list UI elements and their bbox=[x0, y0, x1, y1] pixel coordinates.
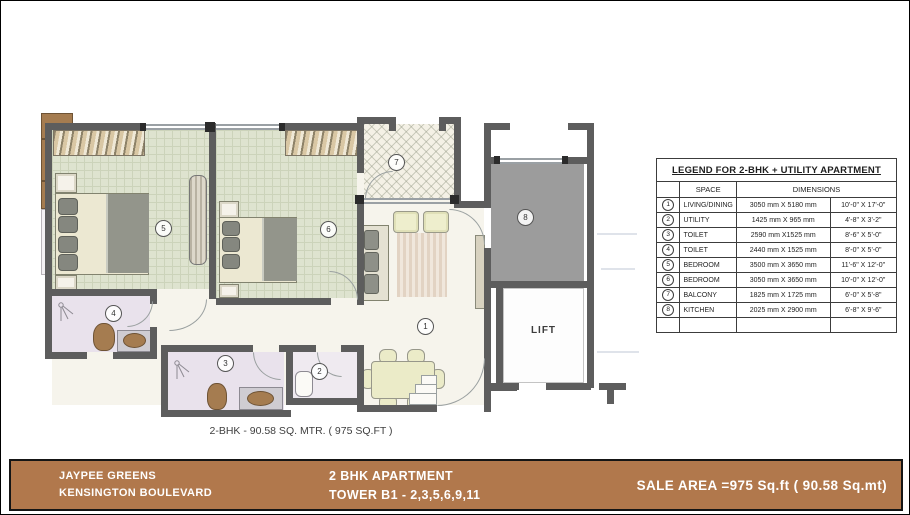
wall bbox=[45, 123, 52, 359]
entry-step bbox=[409, 393, 437, 405]
legend-header-space: SPACE bbox=[680, 182, 736, 198]
legend-dim-mm: 2440 mm X 1525 mm bbox=[736, 243, 830, 258]
room-number-label: 4 bbox=[111, 309, 115, 318]
room-number-8: 8 bbox=[517, 209, 534, 226]
room-number-4: 4 bbox=[105, 305, 122, 322]
nightstand bbox=[219, 201, 239, 218]
wall bbox=[454, 117, 461, 201]
project-line1: JAYPEE GREENS bbox=[59, 468, 212, 485]
nightstand bbox=[55, 275, 77, 290]
legend-header-blank bbox=[657, 182, 680, 198]
room-number-label: 7 bbox=[394, 158, 398, 167]
pillow bbox=[222, 237, 240, 252]
unit-line1: 2 BHK APARTMENT bbox=[329, 467, 480, 486]
window-post bbox=[279, 123, 285, 131]
window bbox=[498, 162, 564, 164]
wall bbox=[161, 345, 253, 352]
legend-row: 5 BEDROOM 3500 mm X 3650 mm 11'-6" X 12'… bbox=[657, 258, 897, 273]
room-number-3: 3 bbox=[217, 355, 234, 372]
armchair bbox=[423, 211, 449, 233]
room-number-label: 5 bbox=[161, 224, 165, 233]
legend-space: LIVING/DINING bbox=[680, 198, 736, 213]
wall bbox=[45, 123, 145, 130]
bed-blanket bbox=[262, 218, 297, 281]
lift-label: LIFT bbox=[503, 325, 584, 336]
legend-dim-mm: 3500 mm X 3650 mm bbox=[736, 258, 830, 273]
armchair bbox=[393, 211, 419, 233]
legend-dim-ft: 4'-8" X 3'-2" bbox=[830, 213, 896, 228]
window-post bbox=[450, 195, 459, 204]
sofa-cushion bbox=[364, 230, 379, 250]
window-post bbox=[140, 123, 146, 131]
unit-info-block: 2 BHK APARTMENT TOWER B1 - 2,3,5,6,9,11 bbox=[329, 467, 480, 505]
bed bbox=[55, 193, 149, 275]
toilet-fixture bbox=[93, 323, 115, 351]
legend-dim-mm: 2025 mm X 2900 mm bbox=[736, 303, 830, 318]
legend-table: LEGEND FOR 2-BHK + UTILITY APARTMENT SPA… bbox=[656, 158, 897, 333]
wall bbox=[281, 123, 363, 130]
legend-dim-mm: 1425 mm X 965 mm bbox=[736, 213, 830, 228]
legend-space: BALCONY bbox=[680, 288, 736, 303]
legend-row: 4 TOILET 2440 mm X 1525 mm 8'-0" X 5'-0" bbox=[657, 243, 897, 258]
ghost-line bbox=[597, 233, 637, 235]
shower-icon bbox=[57, 301, 77, 323]
legend-dim-ft: 8'-0" X 5'-0" bbox=[830, 243, 896, 258]
washbasin bbox=[247, 391, 274, 406]
legend-space: BEDROOM bbox=[680, 273, 736, 288]
legend-dim-ft: 11'-6" X 12'-0" bbox=[830, 258, 896, 273]
pillow bbox=[222, 254, 240, 269]
wall bbox=[546, 383, 591, 390]
legend-row-number: 8 bbox=[662, 304, 674, 316]
wall bbox=[286, 345, 293, 405]
legend-row-number: 2 bbox=[662, 214, 674, 226]
legend-dim-mm: 1825 mm X 1725 mm bbox=[736, 288, 830, 303]
legend-dim-ft: 6'-0" X 5'-8" bbox=[830, 288, 896, 303]
rug bbox=[397, 233, 447, 297]
ghost-line bbox=[597, 351, 639, 353]
window-post bbox=[205, 122, 215, 132]
window-post bbox=[494, 156, 500, 164]
legend-dim-ft: 6'-8" X 9'-6" bbox=[830, 303, 896, 318]
legend-row-empty bbox=[657, 318, 897, 333]
legend-dim-ft: 8'-6" X 5'-0" bbox=[830, 228, 896, 243]
legend-row-number: 5 bbox=[662, 259, 674, 271]
wall bbox=[286, 398, 363, 405]
pillow bbox=[58, 254, 78, 271]
legend-row: 7 BALCONY 1825 mm X 1725 mm 6'-0" X 5'-8… bbox=[657, 288, 897, 303]
wall bbox=[496, 288, 503, 388]
wall bbox=[357, 117, 393, 124]
legend-row: 2 UTILITY 1425 mm X 965 mm 4'-8" X 3'-2" bbox=[657, 213, 897, 228]
bed bbox=[219, 217, 297, 283]
room-number-7: 7 bbox=[388, 154, 405, 171]
legend-row-number: 7 bbox=[662, 289, 674, 301]
title-bar: JAYPEE GREENS KENSINGTON BOULEVARD 2 BHK… bbox=[9, 459, 903, 511]
room-number-label: 1 bbox=[423, 322, 427, 331]
project-line2: KENSINGTON BOULEVARD bbox=[59, 485, 212, 502]
legend-dim-mm: 3050 mm X 5180 mm bbox=[736, 198, 830, 213]
window-curtain bbox=[53, 130, 145, 156]
room-number-label: 8 bbox=[523, 213, 527, 222]
wall bbox=[484, 281, 594, 288]
legend-space: TOILET bbox=[680, 243, 736, 258]
wall bbox=[389, 117, 396, 131]
legend-row-number: 1 bbox=[662, 199, 674, 211]
legend-header-dimensions: DIMENSIONS bbox=[736, 182, 896, 198]
room-number-label: 6 bbox=[326, 225, 330, 234]
pillow bbox=[58, 198, 78, 215]
legend-row: 8 KITCHEN 2025 mm X 2900 mm 6'-8" X 9'-6… bbox=[657, 303, 897, 318]
kitchen-floor bbox=[491, 164, 584, 281]
room-number-1: 1 bbox=[417, 318, 434, 335]
legend-dim-ft: 10'-0" X 17'-0" bbox=[830, 198, 896, 213]
wall bbox=[599, 383, 626, 390]
wall bbox=[357, 195, 364, 305]
sliding-window bbox=[361, 202, 453, 204]
ghost-line bbox=[601, 268, 635, 270]
floor-plan-sheet: 1 2 3 4 5 6 7 8 LIFT 2-BHK - 90.58 SQ. M… bbox=[0, 0, 910, 515]
wall bbox=[357, 123, 364, 173]
sofa-cushion bbox=[364, 252, 379, 272]
wall bbox=[279, 345, 316, 352]
legend-row: 3 TOILET 2590 mm X1525 mm 8'-6" X 5'-0" bbox=[657, 228, 897, 243]
pillow bbox=[58, 236, 78, 253]
sofa bbox=[361, 225, 389, 301]
legend-space: TOILET bbox=[680, 228, 736, 243]
window bbox=[216, 128, 281, 130]
legend-row-number: 4 bbox=[662, 244, 674, 256]
window bbox=[145, 128, 209, 130]
legend-row-number: 6 bbox=[662, 274, 674, 286]
wall bbox=[587, 291, 594, 388]
legend-dim-mm: 3050 mm X 3650 mm bbox=[736, 273, 830, 288]
legend-row: 1 LIVING/DINING 3050 mm X 5180 mm 10'-0"… bbox=[657, 198, 897, 213]
room-number-label: 2 bbox=[317, 367, 321, 376]
sale-area-text: SALE AREA =975 Sq.ft ( 90.58 Sq.mt) bbox=[637, 476, 887, 496]
wall bbox=[607, 390, 614, 404]
window-post bbox=[562, 156, 568, 164]
pillow bbox=[222, 221, 240, 236]
project-name-block: JAYPEE GREENS KENSINGTON BOULEVARD bbox=[59, 468, 212, 501]
legend-space: BEDROOM bbox=[680, 258, 736, 273]
wall bbox=[489, 383, 519, 390]
legend-space: KITCHEN bbox=[680, 303, 736, 318]
wall bbox=[484, 164, 491, 208]
plan-caption: 2-BHK - 90.58 SQ. MTR. ( 975 SQ.FT ) bbox=[141, 425, 461, 437]
legend-row-number: 3 bbox=[662, 229, 674, 241]
wall bbox=[209, 123, 216, 299]
nightstand bbox=[219, 284, 239, 298]
wall bbox=[45, 289, 157, 296]
room-number-2: 2 bbox=[311, 363, 328, 380]
room-number-5: 5 bbox=[155, 220, 172, 237]
wall bbox=[587, 157, 594, 291]
room-number-6: 6 bbox=[320, 221, 337, 238]
washbasin bbox=[123, 333, 146, 348]
legend-row: 6 BEDROOM 3050 mm X 3650 mm 10'-0" X 12'… bbox=[657, 273, 897, 288]
utility-sink bbox=[295, 371, 313, 397]
wall bbox=[45, 352, 87, 359]
legend-title: LEGEND FOR 2-BHK + UTILITY APARTMENT bbox=[657, 159, 897, 182]
unit-line2: TOWER B1 - 2,3,5,6,9,11 bbox=[329, 486, 480, 505]
wall bbox=[161, 345, 168, 417]
sofa-cushion bbox=[364, 274, 379, 294]
floor-plan: 1 2 3 4 5 6 7 8 LIFT bbox=[41, 113, 626, 425]
legend-space: UTILITY bbox=[680, 213, 736, 228]
legend-dim-mm: 2590 mm X1525 mm bbox=[736, 228, 830, 243]
window bbox=[216, 124, 281, 126]
wall bbox=[161, 410, 291, 417]
window bbox=[498, 158, 564, 160]
window-curtain bbox=[285, 130, 359, 156]
shower-icon bbox=[173, 359, 193, 381]
window bbox=[145, 124, 209, 126]
pillow bbox=[58, 216, 78, 233]
window-post bbox=[355, 195, 364, 204]
room-number-label: 3 bbox=[223, 359, 227, 368]
exterior-patch bbox=[461, 124, 484, 201]
wall bbox=[357, 405, 437, 412]
wall bbox=[439, 117, 446, 131]
toilet-fixture bbox=[207, 383, 227, 410]
wall bbox=[216, 298, 331, 305]
wall bbox=[113, 352, 157, 359]
bed-blanket bbox=[106, 194, 149, 273]
legend-dim-ft: 10'-0" X 12'-0" bbox=[830, 273, 896, 288]
wardrobe bbox=[189, 175, 207, 265]
nightstand bbox=[55, 173, 77, 193]
wall bbox=[357, 345, 364, 405]
